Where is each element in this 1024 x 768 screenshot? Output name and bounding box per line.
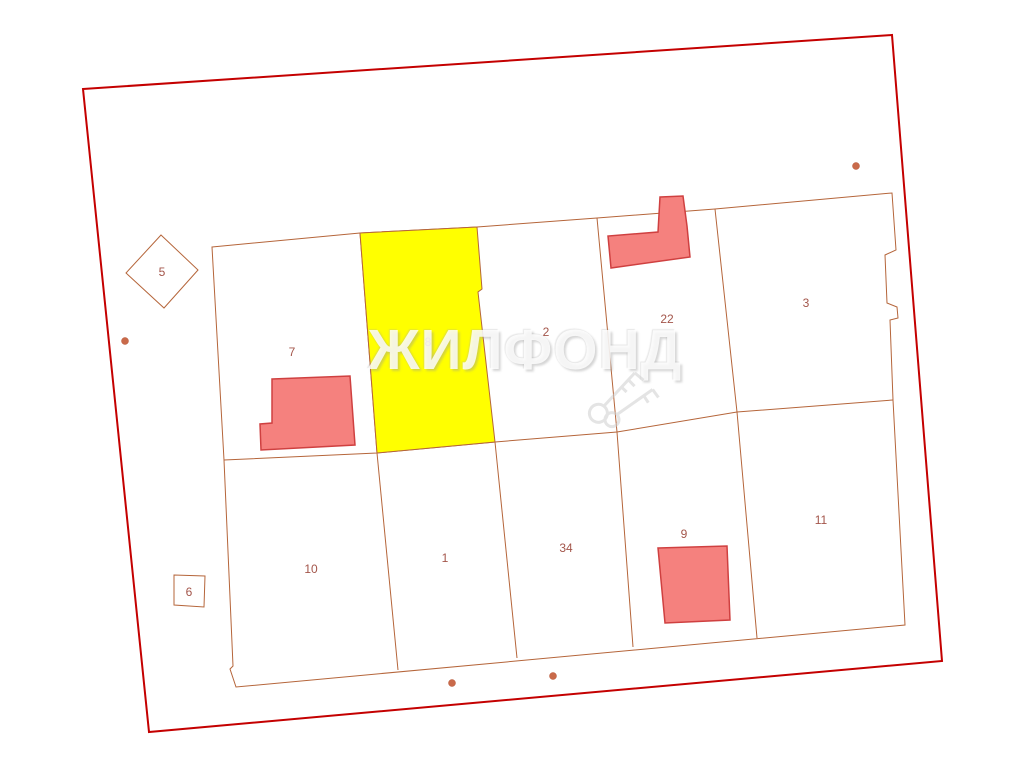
building-plot-22 <box>608 196 690 268</box>
plot-label-3: 3 <box>803 296 810 310</box>
plot-label-2: 2 <box>543 325 550 339</box>
plot-label-1: 1 <box>442 551 449 565</box>
survey-dot <box>122 338 129 345</box>
plot-label-22: 22 <box>660 312 674 326</box>
plot-label-11: 11 <box>815 513 828 527</box>
survey-dot <box>550 673 557 680</box>
plot-label-34: 34 <box>559 541 573 555</box>
divider-1-34 <box>495 442 517 658</box>
building-plot-9 <box>658 546 730 623</box>
plot-label-6: 6 <box>186 585 193 599</box>
plot-label-8: 8 <box>425 335 432 349</box>
plot-label-7: 7 <box>289 345 296 359</box>
plot-label-9: 9 <box>681 527 688 541</box>
outer-boundary <box>83 35 942 732</box>
plot-label-10: 10 <box>304 562 318 576</box>
building-plot-7 <box>260 376 355 450</box>
plot-label-5: 5 <box>159 265 166 279</box>
cadastral-map: 5 6 7 8 2 22 3 10 1 34 9 11 <box>0 0 1024 768</box>
cadastral-map-canvas: 5 6 7 8 2 22 3 10 1 34 9 11 ЖИЛФОНД <box>0 0 1024 768</box>
survey-dot <box>449 680 456 687</box>
divider-10-1 <box>377 453 398 670</box>
survey-dot <box>853 163 860 170</box>
